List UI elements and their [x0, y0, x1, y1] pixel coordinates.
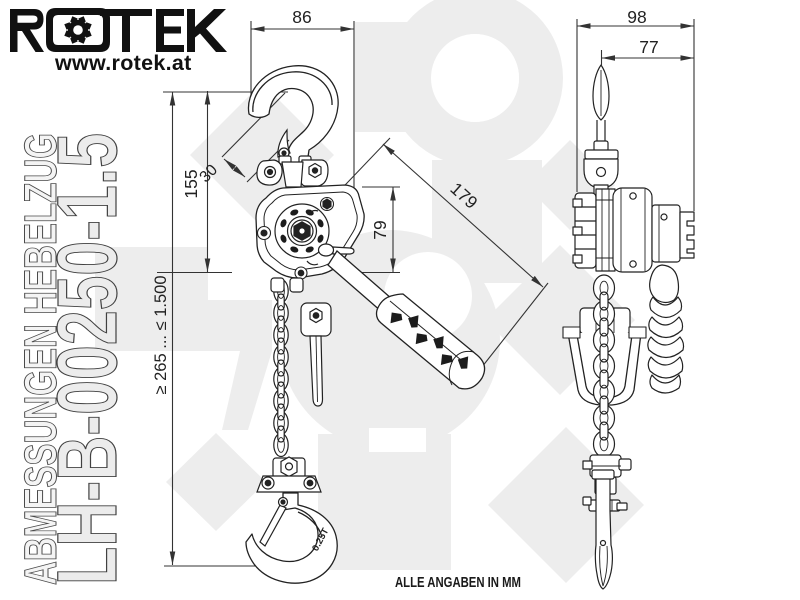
svg-text:LH-B-00250-1.5: LH-B-00250-1.5 [40, 133, 134, 585]
svg-text:98: 98 [627, 7, 646, 27]
svg-text:ALLE ANGABEN IN MM: ALLE ANGABEN IN MM [395, 574, 521, 591]
svg-text:www.rotek.at: www.rotek.at [54, 51, 192, 75]
svg-text:86: 86 [292, 7, 311, 27]
svg-text:≥ 265 ... ≤ 1.500: ≥ 265 ... ≤ 1.500 [152, 275, 170, 394]
svg-text:77: 77 [639, 37, 658, 57]
svg-text:79: 79 [370, 220, 390, 239]
